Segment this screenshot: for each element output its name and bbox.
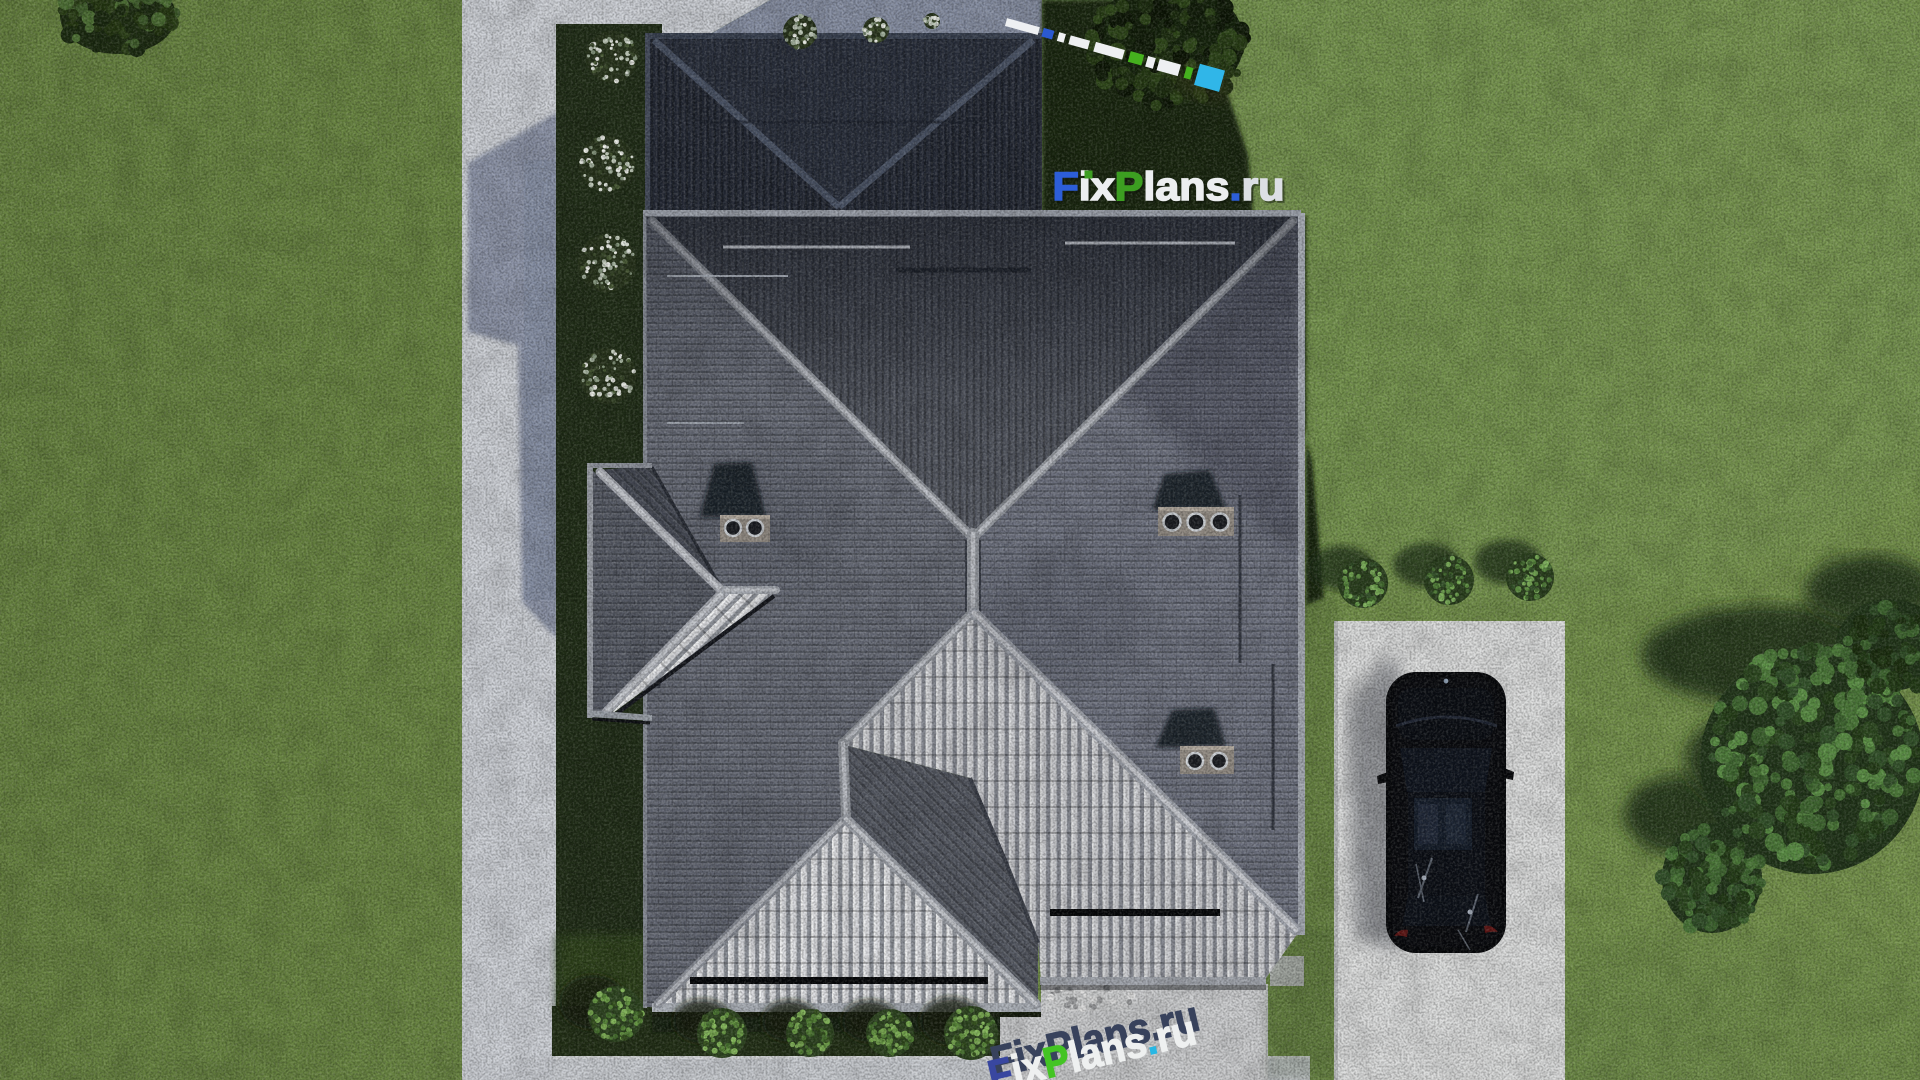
svg-text:lans: lans [1143, 165, 1229, 209]
svg-text:P: P [1115, 165, 1144, 209]
svg-text:ru: ru [1242, 165, 1285, 209]
svg-text:ix: ix [1079, 165, 1115, 209]
svg-text:.: . [1230, 165, 1242, 209]
svg-text:F: F [1053, 165, 1079, 209]
